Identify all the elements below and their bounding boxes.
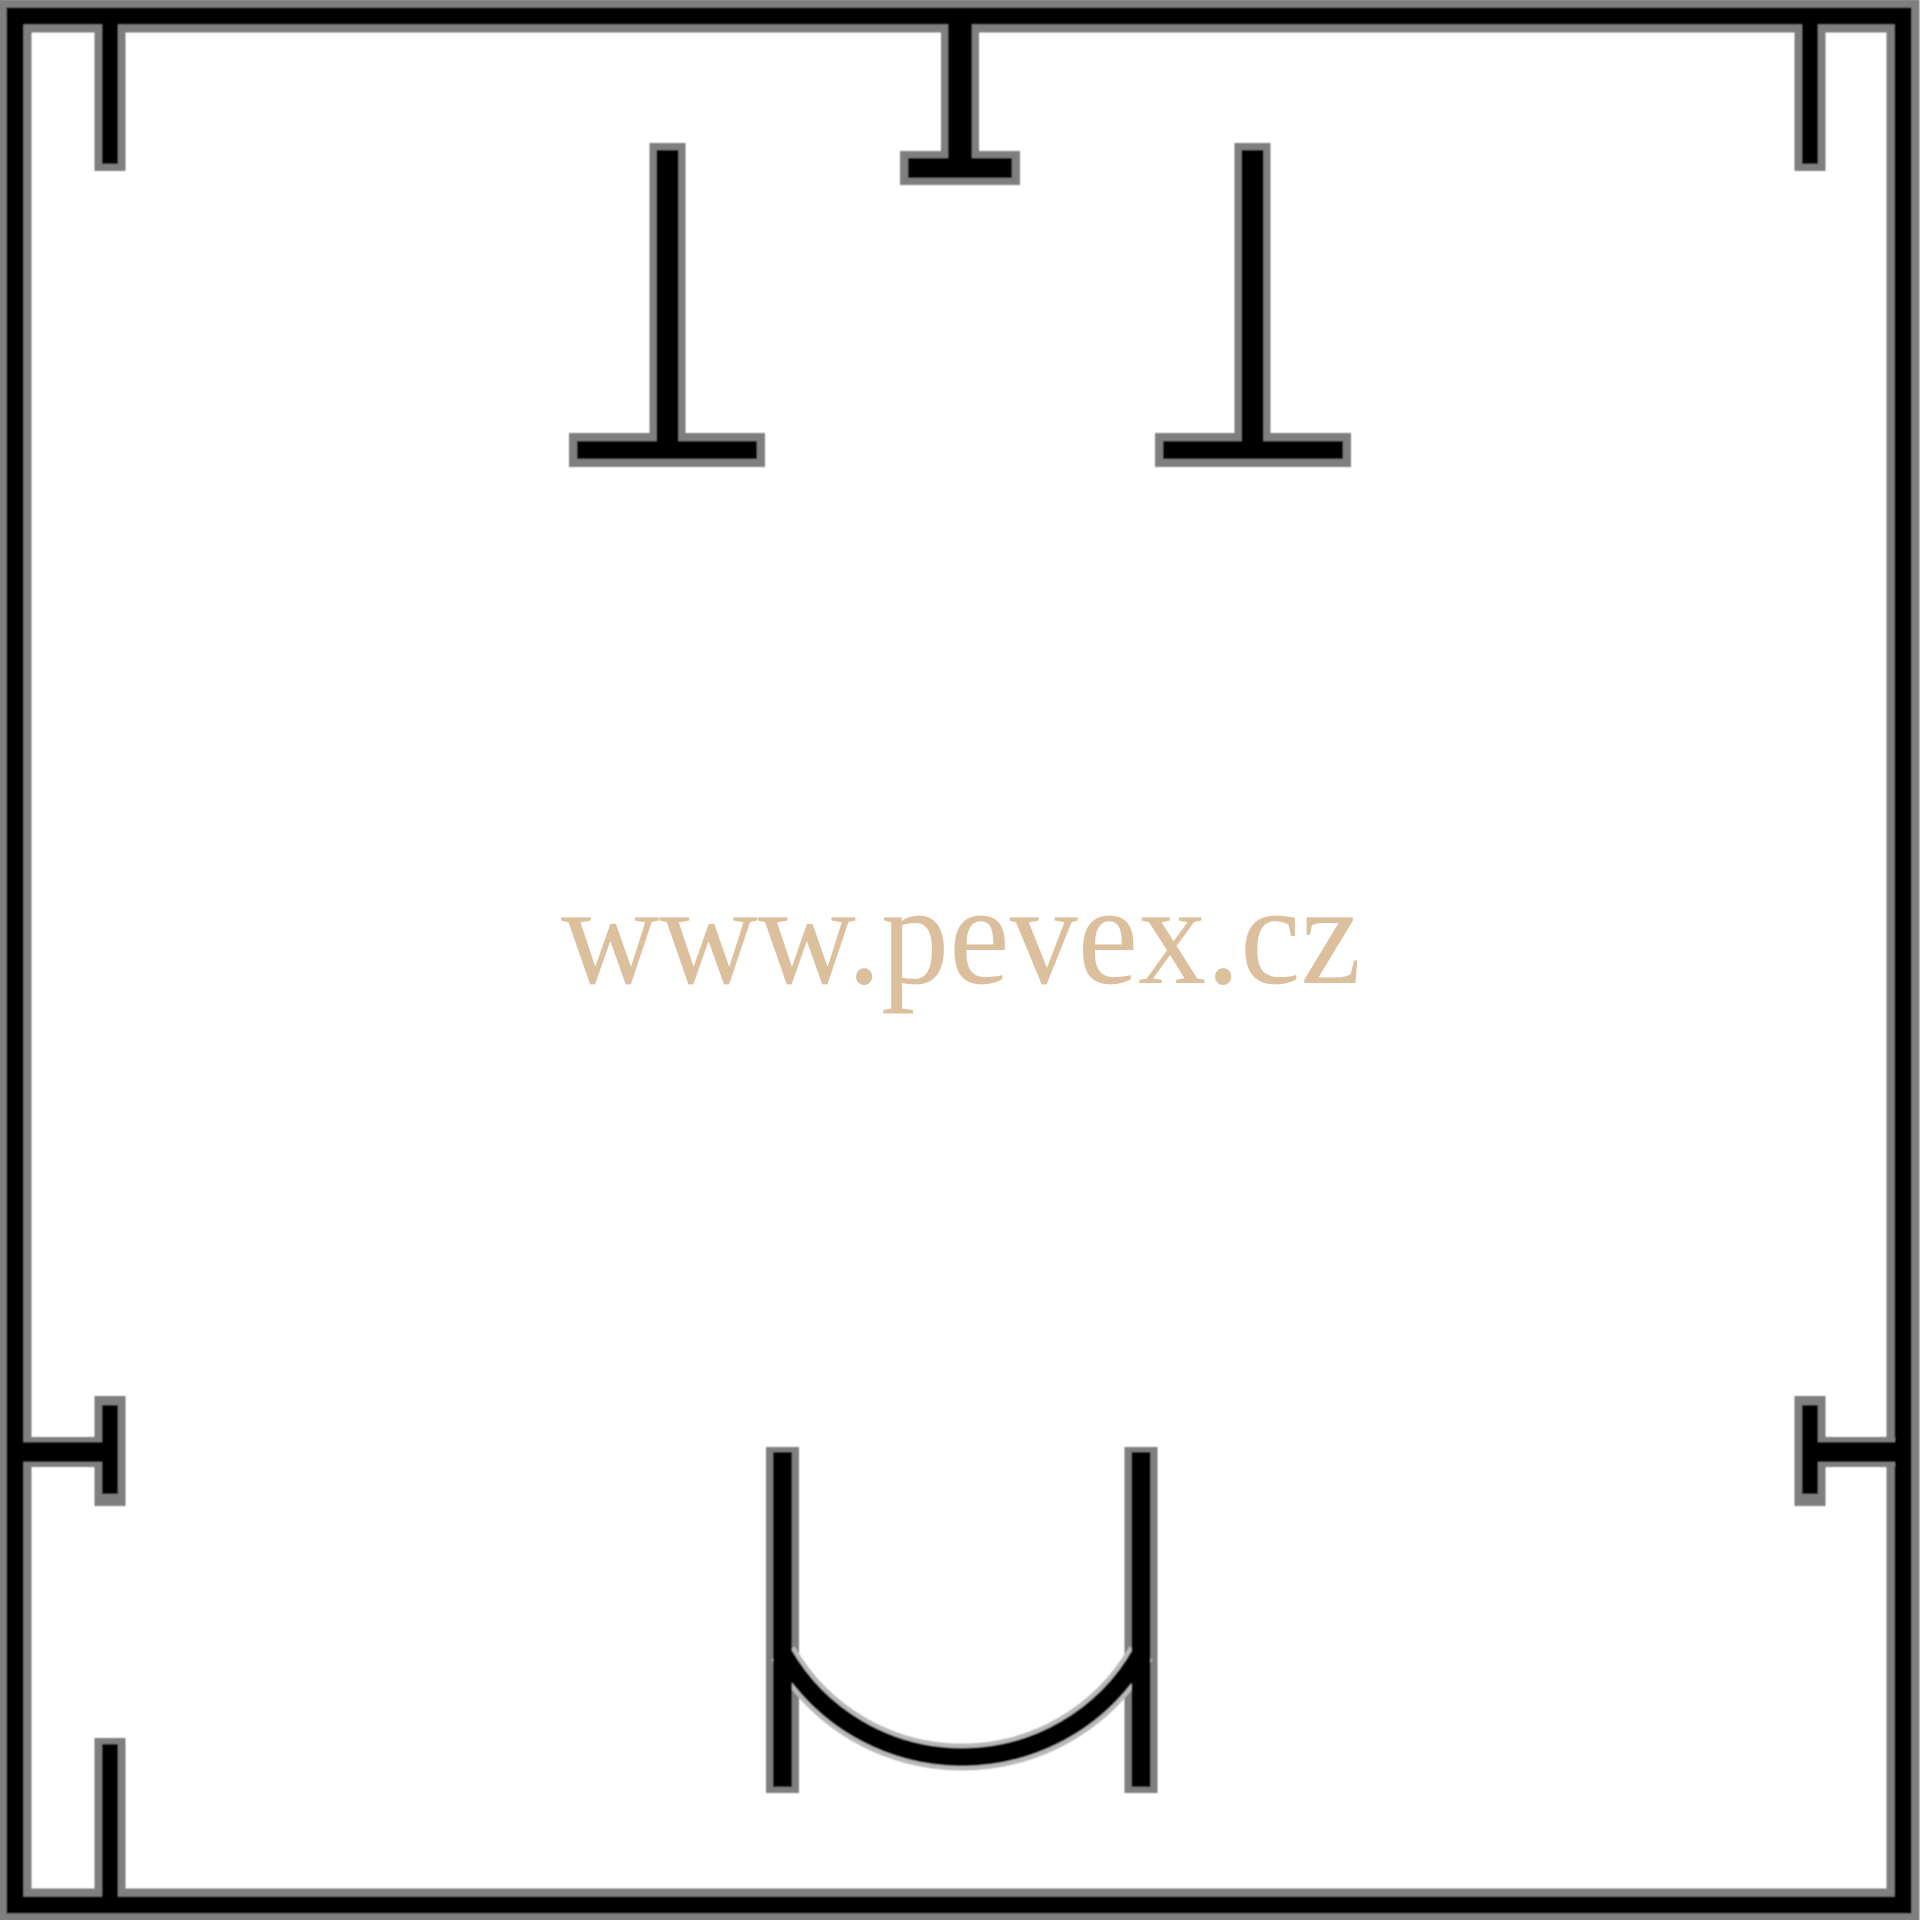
svg-text:www.pevex.cz: www.pevex.cz (561, 856, 1361, 1014)
